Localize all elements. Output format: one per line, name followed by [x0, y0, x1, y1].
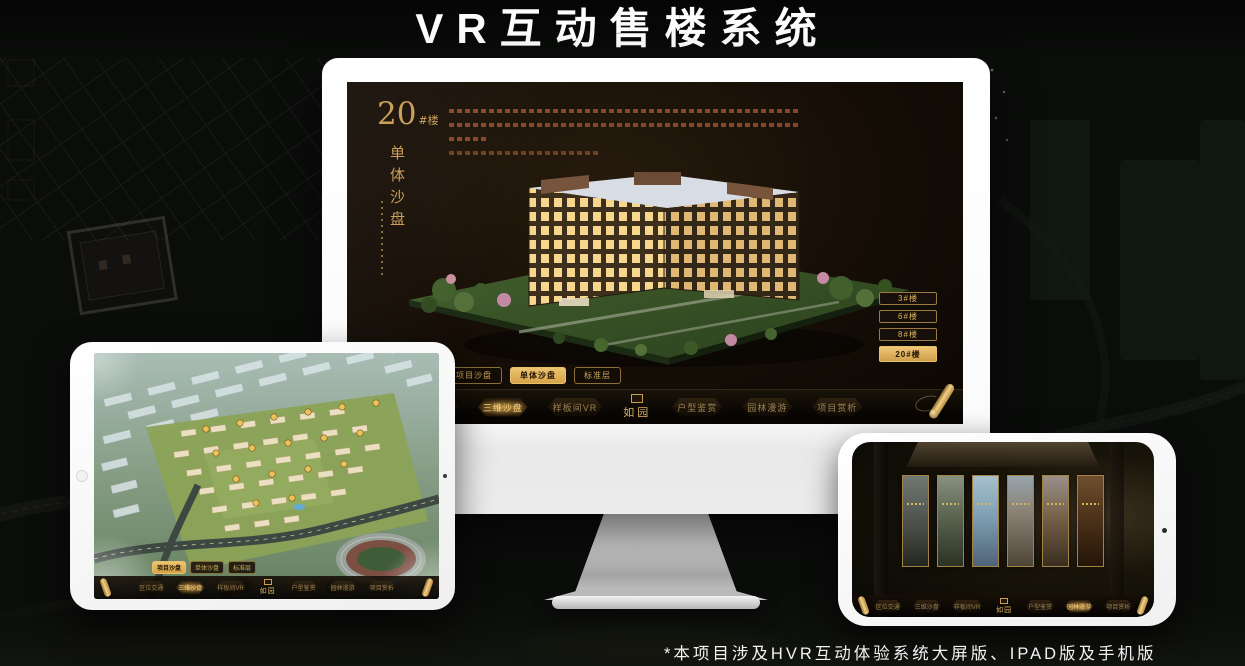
floor-button[interactable]: 6#楼	[879, 310, 937, 323]
brand-logo: 如园	[996, 598, 1012, 615]
footnote-text: *本项目涉及HVR互动体验系统大屏版、IPAD版及手机版	[664, 640, 1157, 664]
ipad-mode-tabs: 项目沙盘单体沙盘标准层	[152, 561, 256, 574]
promo-canvas: VR互动售楼系统 20#楼 单体沙盘	[0, 0, 1245, 666]
mode-tab[interactable]: 单体沙盘	[510, 367, 566, 384]
page-title: VR互动售楼系统	[0, 0, 1245, 57]
nav-item[interactable]: 区位交通	[134, 581, 168, 594]
ipad-aerial-map[interactable]	[94, 353, 439, 599]
floor-button[interactable]: 3#楼	[879, 292, 937, 305]
nav-item[interactable]: 三维沙盘	[473, 398, 533, 417]
building-subtitle: 单体沙盘	[387, 145, 408, 263]
nav-item[interactable]: 项目赏析	[1101, 600, 1135, 613]
nav-item[interactable]: 三维沙盘	[173, 581, 207, 594]
mode-tab[interactable]: 标准层	[228, 561, 256, 574]
gallery-card[interactable]	[972, 475, 999, 567]
mode-tab[interactable]: 标准层	[574, 367, 621, 384]
brand-logo: 如园	[623, 394, 651, 420]
nav-item[interactable]: 样板间VR	[949, 600, 985, 613]
floor-button[interactable]: 8#楼	[879, 328, 937, 341]
brand-seal-icon	[1000, 598, 1008, 604]
mode-tab[interactable]: 项目沙盘	[152, 561, 186, 574]
monitor-base	[552, 596, 760, 609]
phone-navbar: 区位交通三维沙盘样板间VR如园户型鉴赏园林漫游项目赏析	[852, 595, 1154, 617]
scene-gallery	[902, 475, 1104, 567]
nav-item[interactable]: 户型鉴赏	[667, 398, 727, 417]
nav-item[interactable]: 园林漫游	[1062, 600, 1096, 613]
phone-screen[interactable]: 区位交通三维沙盘样板间VR如园户型鉴赏园林漫游项目赏析	[852, 442, 1154, 617]
building-number: 20#楼	[377, 98, 439, 137]
gallery-card[interactable]	[1007, 475, 1034, 567]
desk-shadow-blob	[60, 630, 440, 666]
phone-camera-icon	[1162, 528, 1167, 533]
gallery-card[interactable]	[902, 475, 929, 567]
ipad-screen[interactable]: 项目沙盘单体沙盘标准层 区位交通三维沙盘样板间VR如园户型鉴赏园林漫游项目赏析	[94, 353, 439, 599]
vertical-caption-ticks	[381, 201, 383, 279]
mode-tab[interactable]: 单体沙盘	[190, 561, 224, 574]
brand-seal-icon	[631, 394, 643, 403]
nav-item[interactable]: 三维沙盘	[910, 600, 944, 613]
nav-item[interactable]: 园林漫游	[326, 581, 360, 594]
brand-seal-icon	[264, 579, 272, 585]
gallery-card[interactable]	[937, 475, 964, 567]
floor-button[interactable]: 20#楼	[879, 346, 937, 362]
nav-item[interactable]: 项目赏析	[365, 581, 399, 594]
ipad-camera-icon	[443, 474, 447, 478]
brand-logo-text: 如园	[260, 586, 276, 596]
ipad-navbar: 区位交通三维沙盘样板间VR如园户型鉴赏园林漫游项目赏析	[94, 576, 439, 599]
scroll-menu-icon[interactable]	[915, 380, 955, 424]
nav-item[interactable]: 户型鉴赏	[287, 581, 321, 594]
sandtable-mode-tabs: 项目沙盘单体沙盘标准层	[446, 367, 621, 384]
brand-logo: 如园	[260, 579, 276, 596]
ipad-device: 项目沙盘单体沙盘标准层 区位交通三维沙盘样板间VR如园户型鉴赏园林漫游项目赏析	[70, 342, 455, 610]
nav-item[interactable]: 户型鉴赏	[1023, 600, 1057, 613]
building-number-suffix: #楼	[418, 114, 438, 127]
nav-item[interactable]: 样板间VR	[212, 581, 248, 594]
nav-item[interactable]: 项目赏析	[807, 398, 867, 417]
nav-item[interactable]: 园林漫游	[737, 398, 797, 417]
building-sandtable-viewport[interactable]	[409, 140, 909, 370]
nav-item[interactable]: 区位交通	[871, 600, 905, 613]
interior-post	[1110, 442, 1124, 617]
brand-logo-text: 如园	[623, 404, 651, 420]
brand-logo-text: 如园	[996, 605, 1012, 615]
interior-ceiling-beam	[906, 442, 1099, 467]
interior-post	[874, 442, 888, 617]
nav-item[interactable]: 样板间VR	[543, 398, 608, 417]
gallery-card[interactable]	[1077, 475, 1104, 567]
ipad-home-button[interactable]	[76, 470, 88, 482]
gallery-card[interactable]	[1042, 475, 1069, 567]
phone-device: 区位交通三维沙盘样板间VR如园户型鉴赏园林漫游项目赏析	[838, 433, 1176, 626]
floor-button-group: 3#楼6#楼8#楼20#楼	[879, 292, 937, 362]
